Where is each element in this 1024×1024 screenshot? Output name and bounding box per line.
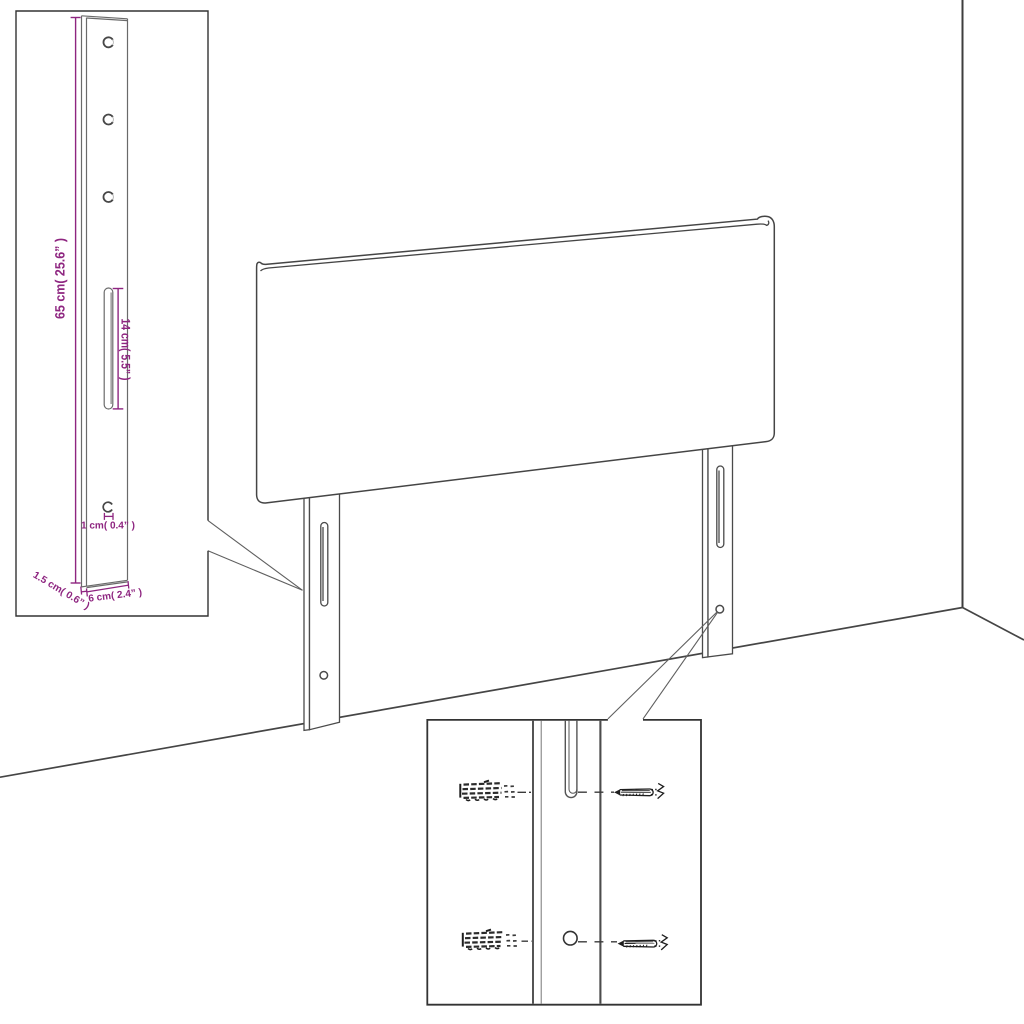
svg-text:65 cm( 25.6” ): 65 cm( 25.6” ): [53, 238, 68, 319]
svg-text:14 cm( 5.5” ): 14 cm( 5.5” ): [118, 319, 132, 381]
svg-text:1 cm( 0.4” ): 1 cm( 0.4” ): [81, 521, 135, 532]
